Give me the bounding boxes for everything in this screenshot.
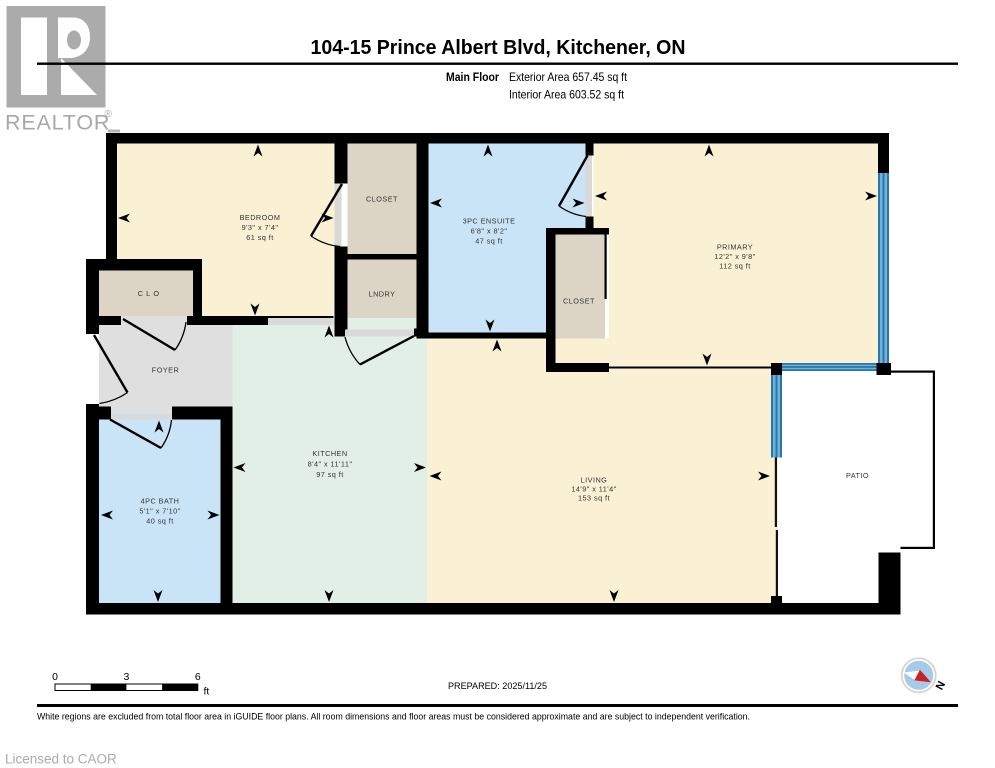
svg-text:Interior Area 603.52 sq ft: Interior Area 603.52 sq ft bbox=[509, 88, 625, 102]
svg-text:9'3" x 7'4": 9'3" x 7'4" bbox=[242, 223, 279, 232]
svg-text:12'2" x 9'8": 12'2" x 9'8" bbox=[714, 252, 755, 261]
svg-text:47 sq ft: 47 sq ft bbox=[475, 237, 503, 246]
svg-text:CLOSET: CLOSET bbox=[366, 195, 398, 204]
svg-text:61 sq ft: 61 sq ft bbox=[246, 233, 274, 242]
svg-text:104-15 Prince Albert Blvd, Kit: 104-15 Prince Albert Blvd, Kitchener, ON bbox=[311, 37, 686, 59]
svg-text:White regions are excluded fro: White regions are excluded from total fl… bbox=[37, 712, 750, 722]
svg-text:6'8" x 8'2": 6'8" x 8'2" bbox=[471, 227, 508, 236]
svg-text:BEDROOM: BEDROOM bbox=[240, 213, 281, 222]
svg-text:Main Floor: Main Floor bbox=[446, 70, 499, 84]
svg-text:REALTOR: REALTOR bbox=[5, 111, 110, 135]
svg-text:3: 3 bbox=[123, 671, 129, 683]
svg-text:0: 0 bbox=[52, 671, 58, 683]
svg-text:4PC BATH: 4PC BATH bbox=[141, 497, 180, 506]
svg-text:Exterior Area 657.45 sq ft: Exterior Area 657.45 sq ft bbox=[509, 70, 628, 84]
svg-text:CLO: CLO bbox=[138, 289, 163, 298]
svg-text:112 sq ft: 112 sq ft bbox=[719, 262, 751, 271]
svg-text:153 sq ft: 153 sq ft bbox=[578, 494, 610, 503]
svg-text:6: 6 bbox=[195, 671, 201, 683]
svg-text:®: ® bbox=[105, 109, 113, 120]
svg-text:CLOSET: CLOSET bbox=[563, 297, 595, 306]
svg-text:3PC ENSUITE: 3PC ENSUITE bbox=[463, 217, 516, 226]
svg-text:5'1" x 7'10": 5'1" x 7'10" bbox=[139, 507, 180, 516]
svg-text:PRIMARY: PRIMARY bbox=[717, 243, 753, 252]
svg-text:8'4" x 11'11": 8'4" x 11'11" bbox=[308, 460, 353, 469]
svg-text:FOYER: FOYER bbox=[152, 366, 179, 375]
svg-text:PATIO: PATIO bbox=[846, 471, 869, 480]
svg-text:KITCHEN: KITCHEN bbox=[312, 449, 347, 458]
svg-text:14'9" x 11'4": 14'9" x 11'4" bbox=[571, 485, 616, 494]
svg-text:40 sq ft: 40 sq ft bbox=[146, 517, 174, 526]
svg-text:LIVING: LIVING bbox=[581, 476, 608, 485]
svg-text:ft: ft bbox=[204, 686, 210, 698]
svg-text:97 sq ft: 97 sq ft bbox=[316, 470, 344, 479]
svg-text:PREPARED: 2025/11/25: PREPARED: 2025/11/25 bbox=[448, 681, 547, 692]
svg-text:LNDRY: LNDRY bbox=[369, 290, 396, 299]
svg-text:Licensed to CAOR: Licensed to CAOR bbox=[5, 752, 117, 767]
